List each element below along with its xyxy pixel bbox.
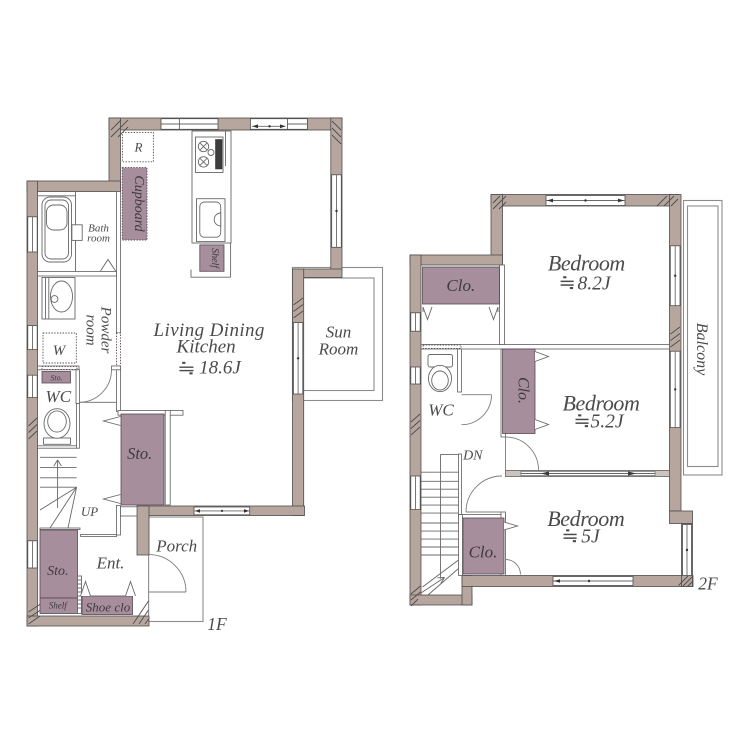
svg-text:room: room xyxy=(87,233,110,245)
svg-text:UP: UP xyxy=(81,504,98,519)
svg-text:Clo.: Clo. xyxy=(469,543,498,562)
svg-text:1F: 1F xyxy=(207,614,227,634)
svg-text:Ent.: Ent. xyxy=(96,554,125,573)
svg-text:8.2J: 8.2J xyxy=(577,274,611,295)
svg-text:Balcony: Balcony xyxy=(693,323,710,376)
svg-text:Bedroom: Bedroom xyxy=(548,250,625,275)
svg-text:Room: Room xyxy=(318,340,359,359)
svg-text:R: R xyxy=(134,139,143,154)
svg-text:Shoe clo: Shoe clo xyxy=(86,600,131,615)
svg-text:room: room xyxy=(83,314,99,345)
svg-text:WC: WC xyxy=(46,387,72,406)
svg-text:Clo.: Clo. xyxy=(446,276,475,295)
svg-text:Sto.: Sto. xyxy=(127,444,152,463)
svg-text:Cupboard: Cupboard xyxy=(131,175,146,232)
svg-text:Clo.: Clo. xyxy=(515,377,532,404)
svg-text:5.2J: 5.2J xyxy=(590,412,624,433)
svg-text:Sto.: Sto. xyxy=(47,564,68,579)
svg-text:W: W xyxy=(53,343,67,359)
svg-text:Powder: Powder xyxy=(98,306,114,354)
svg-text:2F: 2F xyxy=(698,573,718,593)
svg-text:18.6J: 18.6J xyxy=(199,358,242,379)
svg-text:Sto.: Sto. xyxy=(50,374,62,383)
svg-text:5J: 5J xyxy=(581,527,601,548)
svg-text:Kitchen: Kitchen xyxy=(176,336,236,357)
svg-text:WC: WC xyxy=(428,401,454,420)
svg-text:Shelf: Shelf xyxy=(209,248,220,269)
svg-text:Shelf: Shelf xyxy=(49,601,68,611)
svg-text:DN: DN xyxy=(462,449,483,464)
svg-text:Porch: Porch xyxy=(155,536,197,555)
